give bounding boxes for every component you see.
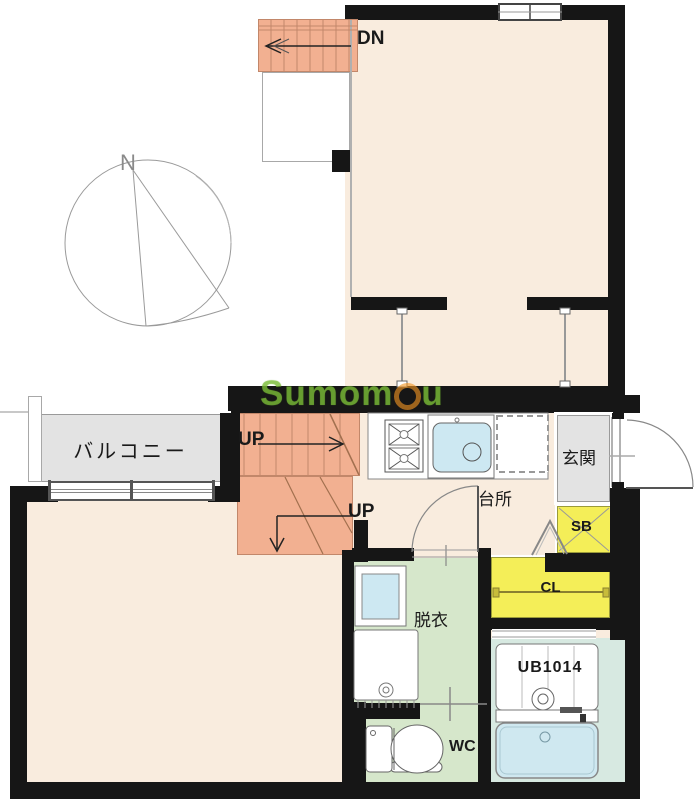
unit-bath-label: UB1014 [495,659,605,677]
magnifier-icon [394,383,421,410]
floor-plan: N [0,0,698,800]
wall-segment [527,297,608,310]
entrance-door [609,413,693,488]
wall-segment [342,703,420,719]
wall-segment [332,150,352,172]
wall-segment [352,548,414,561]
compass: N [65,150,231,326]
wall-segment [10,486,27,798]
dressing-room-label: 脱衣 [414,606,448,631]
toilet-label: WC [449,738,476,756]
wall-segment [625,640,640,799]
wall-segment [608,395,640,413]
watermark: Sumomu [260,374,444,414]
dressing-room [354,558,478,705]
wall-segment [342,550,354,783]
stairs-down-label: DN [357,28,384,50]
stairs-down-2f [258,19,358,72]
top-window [498,3,562,21]
wall-segment [220,413,240,502]
stairs-up-label-lower: UP [348,501,374,523]
shoe-box-label: SB [571,518,592,535]
stairs-up-winder [237,476,353,555]
bath-door-strip [492,629,596,639]
wall-segment [610,488,640,640]
balcony-side-wall [28,396,42,482]
wall-segment [608,5,625,390]
wall-segment [10,782,640,799]
room-2f [345,5,608,388]
balcony-window [48,481,215,501]
property-line [0,411,28,413]
kitchen-label: 台所 [478,485,512,510]
watermark-text-right: u [421,374,443,414]
wall-segment [478,628,491,783]
wall-segment [345,5,625,20]
balcony-label: バルコニー [48,435,213,464]
entrance-label: 玄関 [562,444,596,469]
compass-north-label: N [120,150,136,175]
wall-segment [351,297,447,310]
stairs-up-label-upper: UP [238,429,264,451]
watermark-text-left: Sumom [260,374,393,414]
closet-label: CL [491,579,610,596]
stairwell-void [262,72,350,162]
